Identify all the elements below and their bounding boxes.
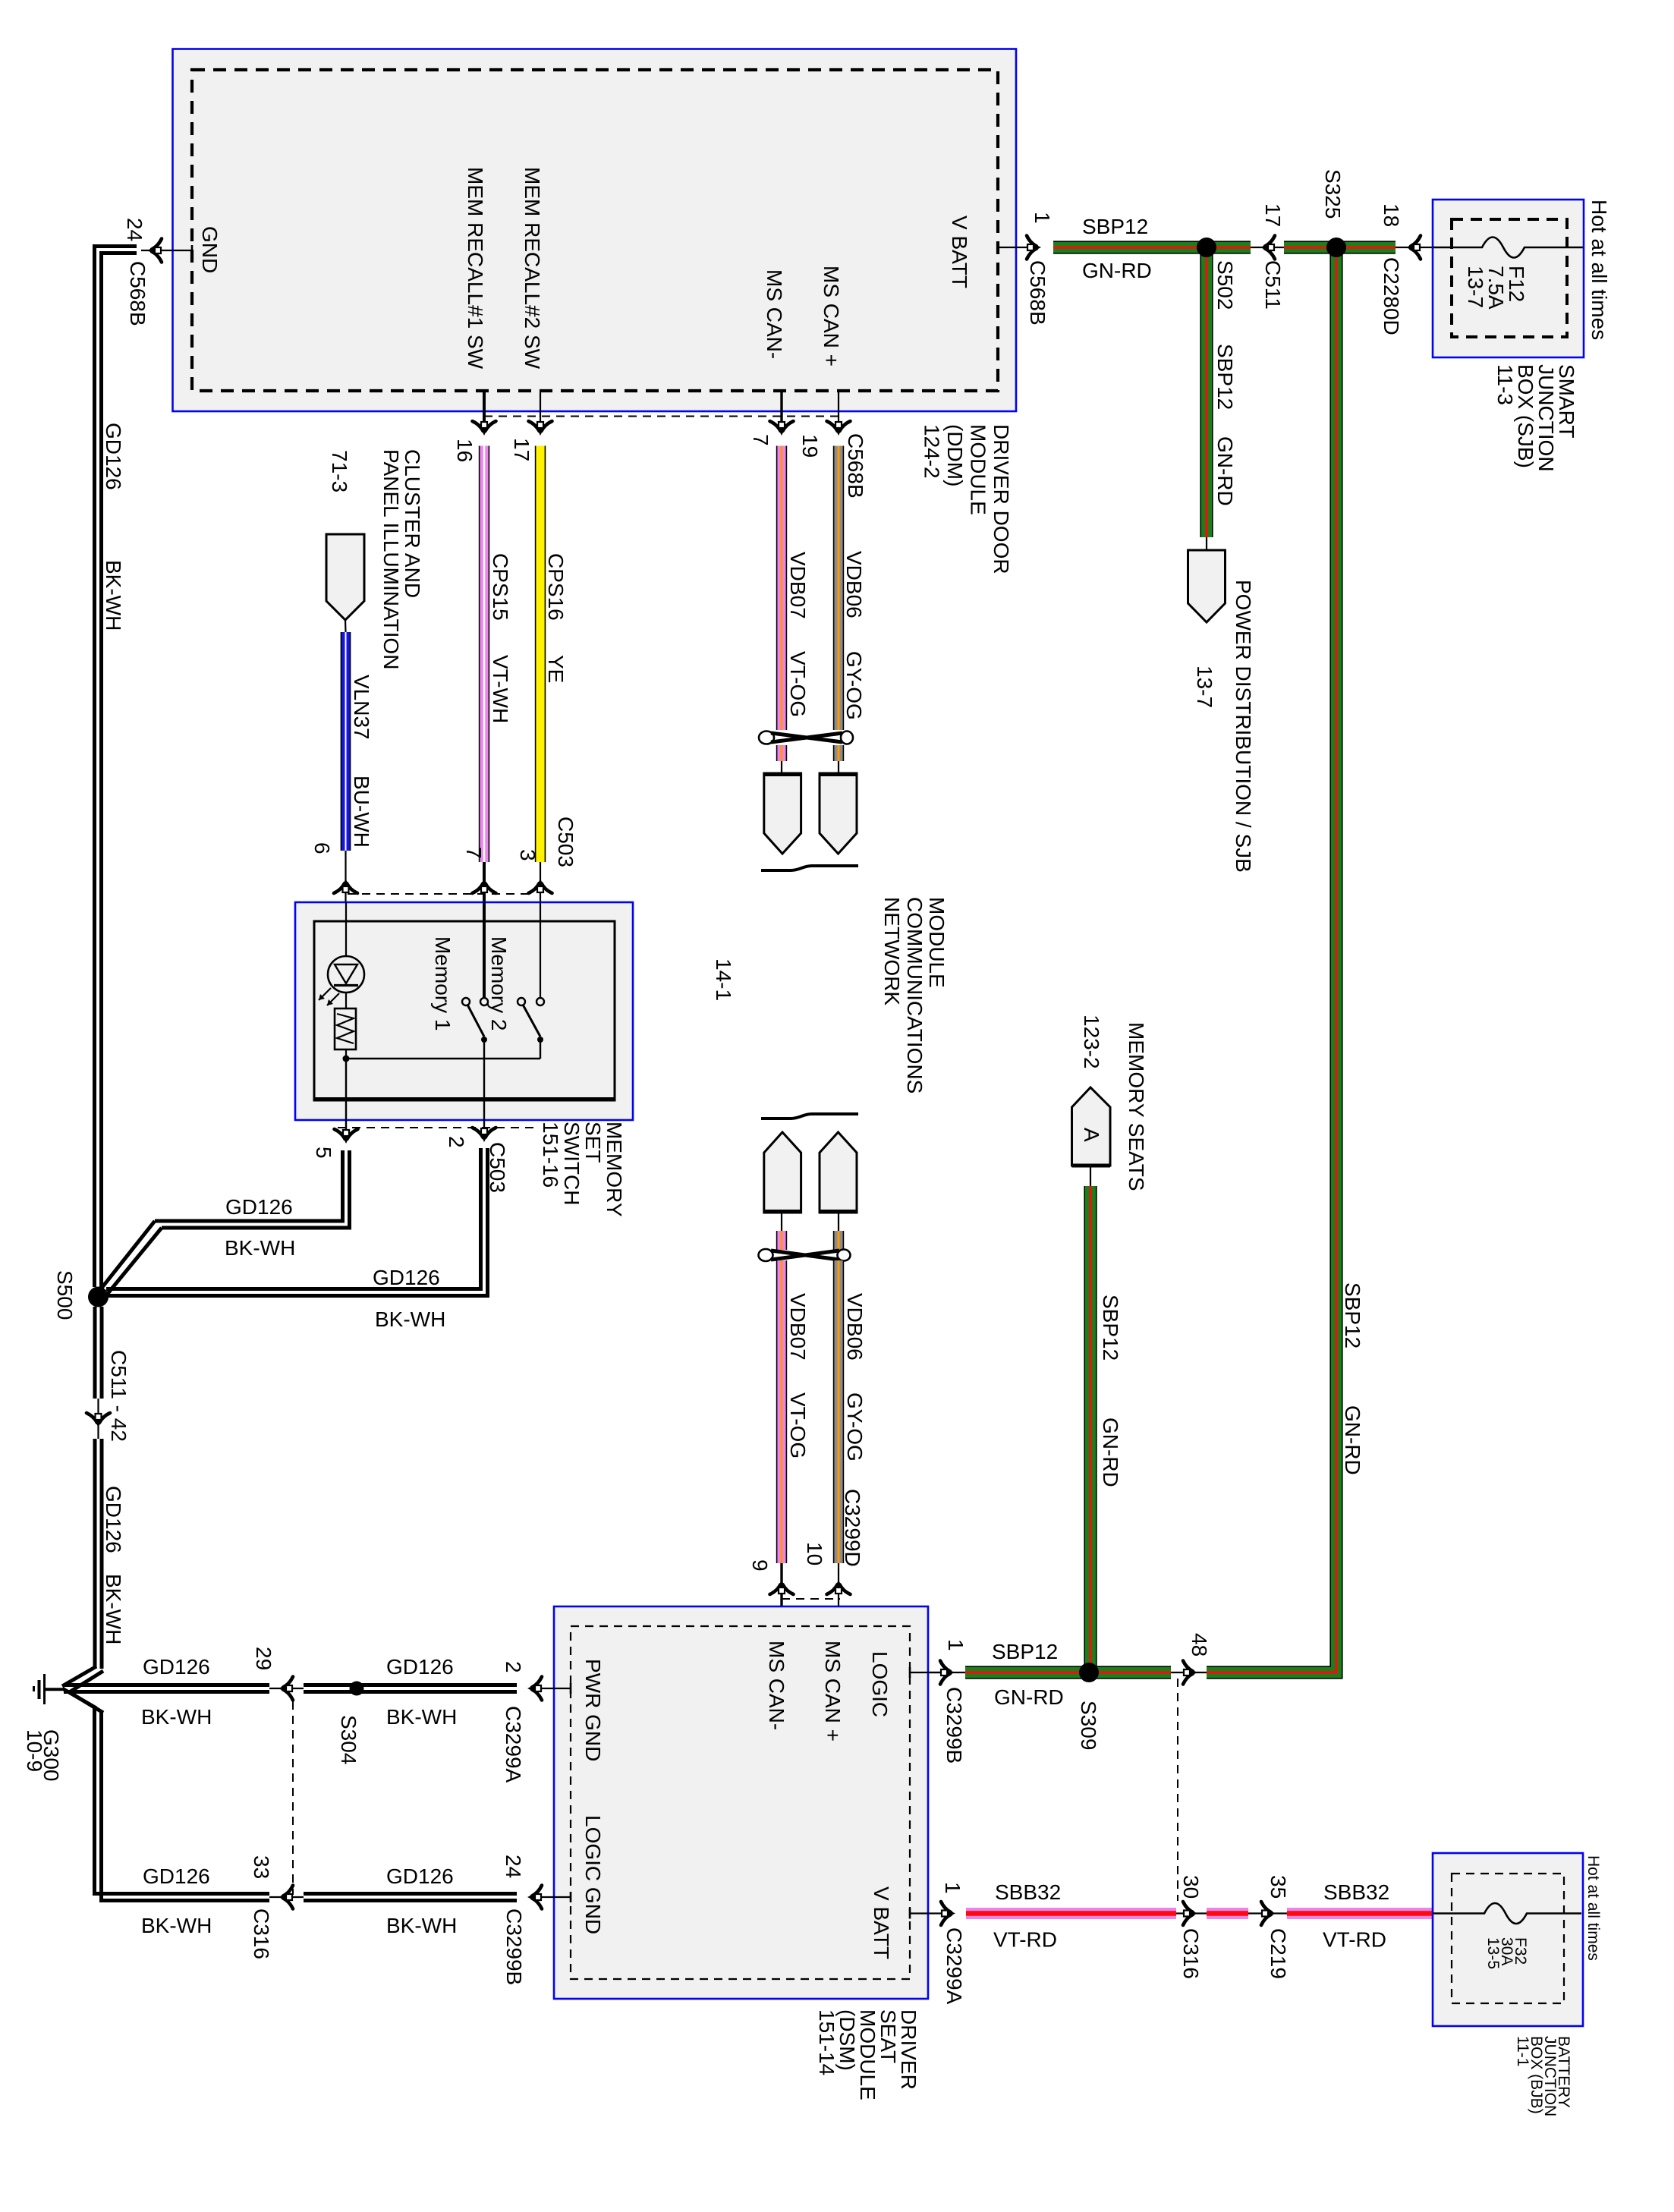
svg-text:NETWORK: NETWORK [880, 897, 904, 1005]
svg-text:24: 24 [123, 218, 146, 241]
svg-text:2: 2 [445, 1136, 468, 1148]
svg-text:C219: C219 [1267, 1928, 1290, 1979]
svg-text:COMMUNICATIONS: COMMUNICATIONS [903, 897, 927, 1093]
svg-text:30: 30 [1179, 1875, 1203, 1899]
svg-text:GD126: GD126 [102, 423, 125, 490]
svg-text:14-1: 14-1 [712, 958, 735, 1001]
svg-text:VDB06: VDB06 [842, 551, 866, 618]
svg-text:1: 1 [944, 1639, 968, 1651]
svg-text:GD126: GD126 [102, 1486, 125, 1553]
svg-text:17: 17 [1261, 203, 1285, 227]
svg-text:MS CAN-: MS CAN- [765, 1641, 788, 1730]
svg-text:VDB07: VDB07 [786, 552, 810, 619]
svg-text:C511: C511 [1261, 260, 1285, 310]
svg-text:YE: YE [544, 655, 568, 683]
svg-text:3: 3 [516, 849, 540, 861]
svg-text:GD126: GD126 [143, 1655, 210, 1679]
svg-text:9: 9 [748, 1559, 772, 1572]
svg-text:VLN37: VLN37 [350, 675, 373, 740]
svg-text:BU-WH: BU-WH [350, 776, 373, 848]
svg-text:SBP12: SBP12 [1082, 215, 1148, 238]
svg-text:33: 33 [250, 1855, 273, 1879]
svg-text:SBP12: SBP12 [1213, 344, 1237, 410]
svg-text:BK-WH: BK-WH [141, 1914, 212, 1937]
svg-text:7: 7 [749, 434, 772, 446]
svg-text:BK-WH: BK-WH [102, 560, 125, 631]
svg-text:35: 35 [1267, 1875, 1290, 1899]
svg-text:17: 17 [510, 438, 533, 461]
svg-text:BK-WH: BK-WH [375, 1307, 445, 1331]
svg-text:MS CAN +: MS CAN + [821, 1641, 845, 1742]
svg-text:MEM RECALL#1 SW: MEM RECALL#1 SW [464, 167, 487, 370]
svg-text:C3299A: C3299A [942, 1927, 966, 2005]
svg-text:PANEL ILLUMINATION: PANEL ILLUMINATION [379, 449, 403, 669]
svg-text:18: 18 [1380, 203, 1403, 227]
svg-text:BK-WH: BK-WH [386, 1914, 457, 1937]
svg-text:CPS15: CPS15 [489, 553, 512, 621]
svg-text:SBP12: SBP12 [1099, 1295, 1122, 1361]
svg-text:Hot at all times: Hot at all times [1584, 1855, 1602, 1961]
svg-text:151-14: 151-14 [815, 2009, 839, 2075]
svg-text:151-16: 151-16 [539, 1122, 562, 1188]
svg-text:GY-OG: GY-OG [843, 1392, 867, 1462]
svg-text:V BATT: V BATT [870, 1886, 893, 1959]
svg-text:1: 1 [1031, 212, 1054, 224]
svg-text:2: 2 [502, 1661, 525, 1673]
svg-text:GND: GND [198, 226, 222, 273]
svg-text:MEMORY SEATS: MEMORY SEATS [1125, 1022, 1148, 1191]
svg-text:VT-RD: VT-RD [993, 1928, 1057, 1952]
svg-text:C3299B: C3299B [942, 1687, 966, 1764]
svg-text:CPS16: CPS16 [544, 553, 568, 621]
svg-text:GD126: GD126 [386, 1864, 454, 1888]
svg-text:7: 7 [462, 847, 486, 859]
svg-text:C568B: C568B [1026, 260, 1049, 326]
svg-text:LOGIC GND: LOGIC GND [581, 1815, 605, 1934]
svg-text:S500: S500 [53, 1270, 77, 1320]
svg-text:13-7: 13-7 [1193, 665, 1216, 708]
svg-text:GY-OG: GY-OG [842, 651, 866, 720]
svg-text:Hot at all times: Hot at all times [1587, 200, 1611, 340]
svg-text:V BATT: V BATT [948, 216, 971, 288]
svg-text:DRIVER DOOR: DRIVER DOOR [990, 424, 1013, 574]
svg-text:10: 10 [803, 1542, 826, 1565]
svg-text:GD126: GD126 [143, 1864, 210, 1888]
svg-text:GN-RD: GN-RD [994, 1685, 1064, 1709]
svg-text:Memory 1: Memory 1 [431, 936, 455, 1030]
svg-text:SBP12: SBP12 [992, 1640, 1058, 1663]
svg-text:VT-OG: VT-OG [786, 1392, 810, 1458]
svg-text:1: 1 [941, 1882, 964, 1894]
svg-text:CLUSTER AND: CLUSTER AND [401, 449, 424, 598]
svg-text:6: 6 [310, 842, 334, 854]
svg-text:MODULE: MODULE [925, 897, 949, 988]
svg-text:SBB32: SBB32 [995, 1880, 1061, 1904]
svg-text:GD126: GD126 [386, 1655, 454, 1679]
svg-text:C3299A: C3299A [502, 1706, 525, 1783]
svg-text:Memory 2: Memory 2 [487, 936, 511, 1030]
svg-text:(DDM): (DDM) [943, 424, 967, 486]
svg-text:48: 48 [1188, 1633, 1211, 1657]
svg-text:GN-RD: GN-RD [1213, 436, 1237, 506]
svg-text:PWR GND: PWR GND [581, 1659, 605, 1761]
svg-text:VT-RD: VT-RD [1323, 1928, 1386, 1952]
svg-text:5: 5 [312, 1147, 335, 1159]
svg-text:C316: C316 [1179, 1928, 1203, 1979]
svg-text:VDB06: VDB06 [843, 1293, 867, 1361]
svg-text:C503: C503 [554, 817, 577, 867]
svg-text:C3299D: C3299D [841, 1489, 864, 1567]
svg-text:VT-WH: VT-WH [489, 655, 512, 723]
svg-text:GN-RD: GN-RD [1099, 1418, 1122, 1487]
svg-text:S325: S325 [1321, 169, 1345, 219]
svg-text:VDB07: VDB07 [786, 1293, 810, 1361]
svg-text:11-1: 11-1 [1514, 2036, 1531, 2066]
svg-text:13-7: 13-7 [1464, 266, 1487, 308]
svg-text:S502: S502 [1213, 260, 1237, 310]
svg-text:MS CAN-: MS CAN- [763, 269, 786, 359]
svg-text:GN-RD: GN-RD [1341, 1405, 1364, 1475]
svg-text:GN-RD: GN-RD [1082, 259, 1152, 282]
svg-text:16: 16 [453, 439, 477, 462]
svg-text:124-2: 124-2 [920, 424, 944, 479]
svg-text:123-2: 123-2 [1080, 1015, 1103, 1069]
svg-text:10-9: 10-9 [23, 1729, 46, 1772]
svg-text:GD126: GD126 [373, 1266, 440, 1289]
svg-text:C3299B: C3299B [502, 1908, 526, 1985]
svg-text:BK-WH: BK-WH [386, 1705, 457, 1729]
svg-text:13-5: 13-5 [1484, 1937, 1502, 1969]
svg-text:GD126: GD126 [225, 1195, 293, 1219]
svg-text:71-3: 71-3 [328, 450, 351, 492]
svg-text:MEMORY: MEMORY [603, 1122, 626, 1217]
svg-text:C511 - 42: C511 - 42 [107, 1350, 131, 1442]
svg-text:S309: S309 [1077, 1701, 1100, 1750]
svg-text:C568B: C568B [844, 433, 867, 499]
svg-text:SBP12: SBP12 [1341, 1282, 1364, 1348]
svg-text:A: A [1080, 1128, 1103, 1142]
svg-text:MS CAN +: MS CAN + [820, 266, 843, 367]
svg-text:S304: S304 [337, 1715, 360, 1764]
svg-text:C316: C316 [250, 1908, 273, 1959]
svg-text:LOGIC: LOGIC [868, 1651, 892, 1717]
svg-text:19: 19 [798, 434, 822, 458]
svg-text:POWER DISTRIBUTION / SJB: POWER DISTRIBUTION / SJB [1232, 580, 1255, 873]
svg-text:BK-WH: BK-WH [141, 1705, 212, 1729]
svg-text:C2280D: C2280D [1380, 257, 1403, 335]
svg-text:VT-OG: VT-OG [786, 651, 810, 717]
svg-text:SBB32: SBB32 [1323, 1880, 1389, 1904]
svg-text:C568B: C568B [126, 261, 149, 326]
svg-text:SWITCH: SWITCH [560, 1122, 584, 1205]
svg-text:MODULE: MODULE [967, 424, 990, 515]
svg-text:BK-WH: BK-WH [102, 1574, 125, 1644]
svg-text:MEM RECALL#2 SW: MEM RECALL#2 SW [521, 167, 544, 370]
svg-text:11-3: 11-3 [1493, 364, 1517, 405]
svg-text:SET: SET [581, 1122, 605, 1163]
svg-text:BK-WH: BK-WH [225, 1236, 295, 1260]
svg-text:24: 24 [502, 1855, 525, 1878]
svg-text:29: 29 [252, 1647, 275, 1670]
